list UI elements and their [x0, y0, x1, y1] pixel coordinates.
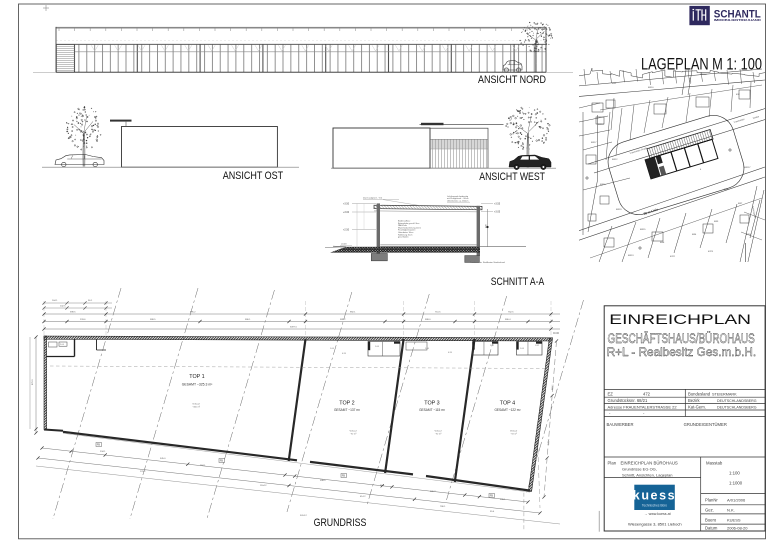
svg-text:1:1000: 1:1000: [729, 481, 743, 486]
svg-text:2006-08-20: 2006-08-20: [727, 526, 748, 531]
svg-text:995.2: 995.2: [190, 311, 196, 313]
svg-text:STEIERMARK: STEIERMARK: [712, 392, 737, 396]
svg-text:FB: FB: [490, 494, 494, 498]
svg-text:TOP 2: TOP 2: [339, 401, 354, 407]
svg-text:Unterkonstr. ca. 160cm: Unterkonstr. ca. 160cm: [447, 199, 469, 202]
svg-text:R+L - Realbesitz Ges.m.b.H.: R+L - Realbesitz Ges.m.b.H.: [607, 345, 756, 359]
svg-text:388.0: 388.0: [425, 319, 431, 321]
svg-text:EINREICHPLAN BÜROHAUS: EINREICHPLAN BÜROHAUS: [621, 461, 678, 466]
svg-text:386.2: 386.2: [430, 491, 436, 493]
svg-text:Buero: Buero: [705, 517, 717, 522]
svg-text:121.2: 121.2: [140, 471, 146, 473]
svg-text:GESAMT ~115 m²: GESAMT ~115 m²: [419, 408, 445, 412]
svg-text:±0.00: ±0.00: [553, 332, 560, 335]
svg-text:Bezirk: Bezirk: [688, 398, 701, 403]
svg-text:Dach aufgesch. ~15t: Dach aufgesch. ~15t: [363, 197, 383, 200]
svg-text:~92 m²: ~92 m²: [510, 433, 517, 436]
svg-text:1:100: 1:100: [729, 471, 740, 476]
svg-text:164.1: 164.1: [52, 300, 58, 302]
svg-text:SCHNITT A-A: SCHNITT A-A: [491, 276, 545, 288]
svg-text:68/14: 68/14: [598, 124, 604, 126]
svg-text:GESAMT ~122 m²: GESAMT ~122 m²: [494, 408, 520, 412]
svg-text:TOP 4: TOP 4: [500, 401, 515, 407]
svg-text:GRUNDRISS: GRUNDRISS: [314, 517, 367, 529]
svg-text:Datum: Datum: [705, 526, 718, 531]
svg-text:234.1: 234.1: [100, 451, 106, 453]
svg-text:Technisches Büro: Technisches Büro: [642, 504, 667, 508]
svg-text:710.5: 710.5: [435, 311, 441, 313]
svg-text:Grundstücksnr. 68/21: Grundstücksnr. 68/21: [608, 398, 648, 403]
svg-text:414.2: 414.2: [360, 496, 366, 498]
svg-text:68/15: 68/15: [640, 229, 646, 231]
svg-text:388.5: 388.5: [150, 319, 156, 321]
svg-text:Wiesengasse 3, 8501 Lieboch: Wiesengasse 3, 8501 Lieboch: [628, 522, 682, 527]
svg-text:233.6: 233.6: [80, 319, 86, 321]
svg-text:1164.2: 1164.2: [260, 485, 267, 487]
svg-text:IMMOBILIENTREUHAND: IMMOBILIENTREUHAND: [714, 19, 761, 22]
svg-text:Schnitt, Ansichten, Lageplan: Schnitt, Ansichten, Lageplan: [622, 472, 672, 477]
svg-text:68/17: 68/17: [591, 142, 597, 144]
svg-text:68/12: 68/12: [612, 159, 618, 161]
svg-text:68/10: 68/10: [648, 87, 654, 89]
svg-text:→ www.kuess.at: → www.kuess.at: [644, 512, 671, 516]
svg-text:FB: FB: [97, 443, 101, 447]
svg-text:5097.5: 5097.5: [290, 326, 297, 328]
svg-text:762.5: 762.5: [508, 311, 514, 313]
svg-text:~300 m²: ~300 m²: [192, 406, 200, 409]
svg-text:982.1: 982.1: [350, 311, 356, 313]
svg-text:68/19: 68/19: [616, 209, 622, 211]
svg-text:Verkauf: Verkauf: [192, 403, 200, 406]
svg-text:N.K.: N.K.: [727, 508, 735, 513]
svg-text:5014.2: 5014.2: [300, 515, 307, 517]
svg-text:Fundamente: Stahlbeton Streife: Fundamente: Stahlbeton Streifenfund.: [470, 261, 506, 264]
svg-text:+3.50: +3.50: [343, 203, 350, 206]
svg-text:KUESS: KUESS: [727, 517, 741, 522]
svg-text:FB: FB: [220, 459, 224, 463]
svg-text:TOP 1: TOP 1: [189, 374, 204, 380]
svg-text:102.5: 102.5: [60, 305, 66, 307]
svg-text:Adresse FRAUENTALERSTRASSE 22: Adresse FRAUENTALERSTRASSE 22: [608, 404, 678, 409]
svg-text:Verkauf: Verkauf: [434, 430, 441, 433]
svg-text:68/13: 68/13: [628, 255, 634, 257]
svg-text:786.1: 786.1: [440, 506, 446, 508]
svg-text:ANSICHT NORD: ANSICHT NORD: [478, 74, 546, 86]
svg-text:4222: 4222: [670, 256, 676, 258]
svg-text:EINREICHPLAN: EINREICHPLAN: [609, 311, 751, 327]
svg-text:+3.05: +3.05: [494, 211, 501, 214]
svg-text:Masstab: Masstab: [706, 461, 723, 466]
svg-text:389.2: 389.2: [340, 319, 346, 321]
svg-text:Verkauf: Verkauf: [349, 430, 356, 433]
svg-text:68/117: 68/117: [744, 167, 751, 169]
svg-text:kuess: kuess: [633, 489, 676, 503]
svg-text:4223: 4223: [708, 251, 714, 253]
svg-text:BAUWERBER: BAUWERBER: [607, 422, 634, 427]
svg-text:A/01/2006: A/01/2006: [727, 498, 746, 503]
svg-text:4224: 4224: [746, 234, 752, 236]
svg-text:398.5: 398.5: [320, 480, 326, 482]
svg-text:TOP 3: TOP 3: [424, 401, 439, 407]
svg-text:FB: FB: [342, 474, 346, 478]
svg-text:345.0: 345.0: [160, 458, 166, 460]
svg-text:DEUTSCHLANDSBERG: DEUTSCHLANDSBERG: [717, 405, 757, 409]
svg-text:870.0: 870.0: [32, 379, 34, 385]
svg-text:gew. Boden: gew. Boden: [398, 237, 408, 239]
svg-text:386.1: 386.1: [245, 319, 251, 321]
svg-text:GESAMT ~325.3 m²: GESAMT ~325.3 m²: [182, 383, 213, 387]
svg-text:GESAMT ~137 m²: GESAMT ~137 m²: [334, 408, 360, 412]
svg-text:386.4: 386.4: [505, 319, 511, 321]
svg-text:+2.50: +2.50: [343, 229, 350, 232]
svg-text:Verkauf: Verkauf: [510, 430, 517, 433]
svg-text:68/118: 68/118: [700, 74, 707, 76]
svg-text:784.1: 784.1: [200, 465, 206, 467]
svg-text:DEUTSCHLANDSBERG: DEUTSCHLANDSBERG: [717, 399, 757, 403]
svg-text:598.5: 598.5: [70, 311, 76, 313]
svg-text:ANSICHT OST: ANSICHT OST: [223, 170, 284, 182]
svg-text:~92 m²: ~92 m²: [435, 433, 442, 436]
svg-text:GRUNDEIGENTÜMER: GRUNDEIGENTÜMER: [684, 422, 727, 427]
svg-text:398.1: 398.1: [500, 499, 506, 501]
svg-text:~92 m²: ~92 m²: [350, 433, 357, 436]
svg-text:PlanNr: PlanNr: [705, 498, 718, 503]
svg-text:Kat-Gem.: Kat-Gem.: [688, 404, 706, 409]
svg-text:EZ: EZ: [608, 391, 614, 396]
svg-text:Gez.: Gez.: [705, 508, 714, 513]
svg-text:472: 472: [643, 391, 651, 396]
svg-text:±0.00: ±0.00: [341, 244, 347, 246]
svg-text:+3.55: +3.55: [494, 203, 501, 206]
svg-text:68/16: 68/16: [600, 184, 606, 186]
svg-text:+3.00: +3.00: [343, 211, 350, 214]
svg-text:Grundrisse EG OG,: Grundrisse EG OG,: [622, 467, 657, 472]
svg-text:Plan: Plan: [608, 461, 617, 466]
svg-text:Bundesland: Bundesland: [688, 391, 711, 396]
svg-text:ANSICHT WEST: ANSICHT WEST: [479, 171, 545, 183]
